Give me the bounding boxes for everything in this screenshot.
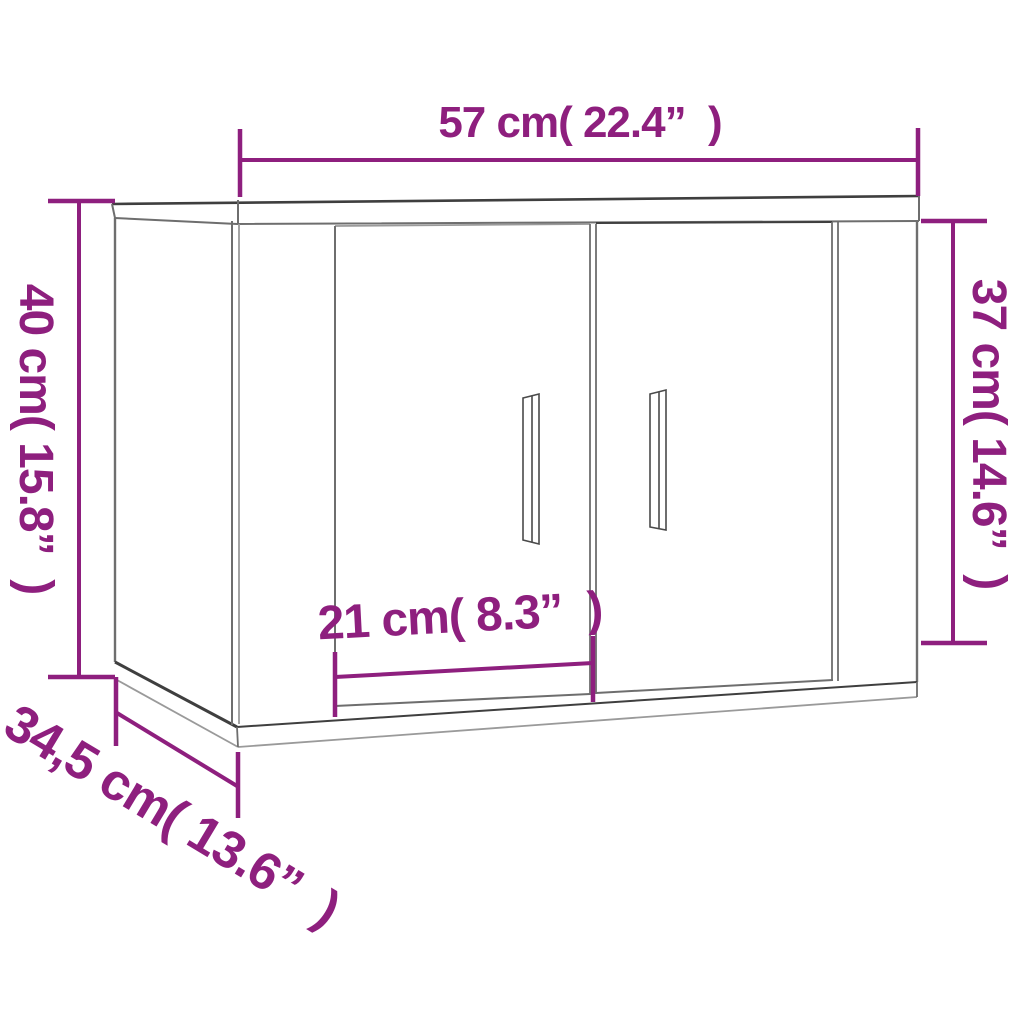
height-right-dimension-label: 37 cm( 14.6” ) (964, 279, 1012, 590)
cabinet-left-panel (115, 218, 238, 747)
height-left-dimension-label: 40 cm( 15.8” ) (11, 284, 59, 595)
cabinet-line-drawing (0, 0, 1024, 1024)
right-door-handle (650, 390, 666, 530)
left-door-handle (523, 394, 539, 544)
width-dimension-label: 57 cm( 22.4” ) (438, 101, 721, 145)
cabinet-bottom-panel (237, 682, 917, 747)
dimension-diagram: 57 cm( 22.4” ) 40 cm( 15.8” ) 37 cm( 14.… (0, 0, 1024, 1024)
cabinet-top-panel (112, 196, 919, 225)
